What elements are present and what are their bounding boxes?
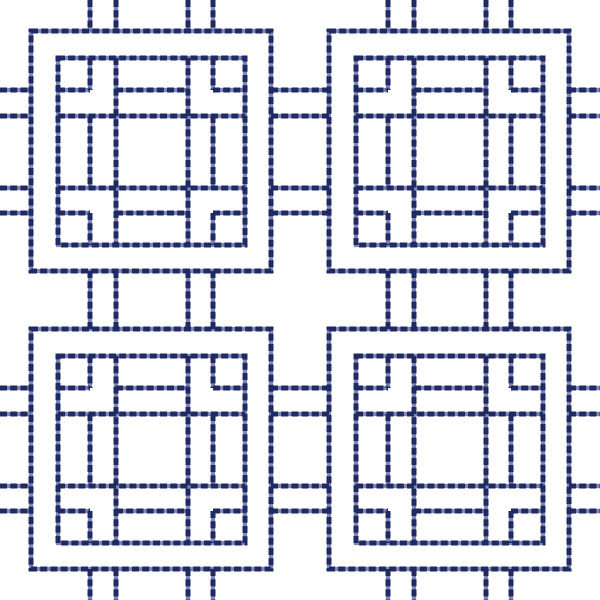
pattern-canvas [0,0,600,600]
lattice-pattern-svg [0,0,600,600]
